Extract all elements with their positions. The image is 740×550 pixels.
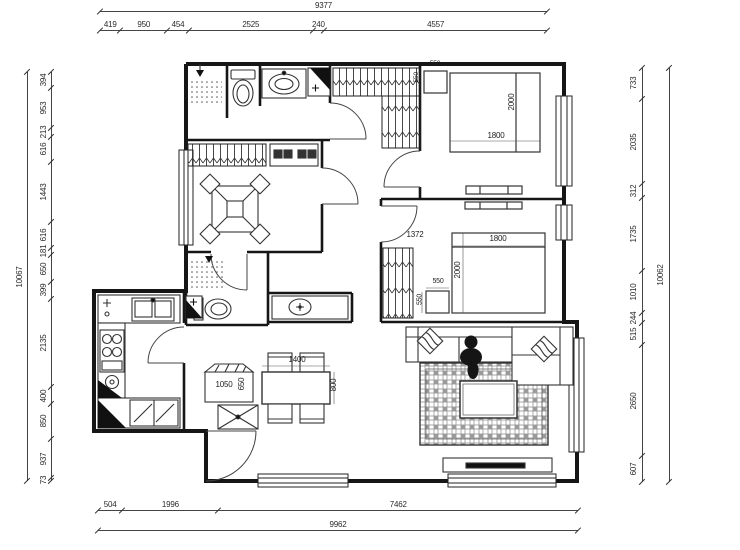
nightstand-icon xyxy=(424,71,447,93)
window-icon xyxy=(448,474,556,487)
wardrobe-hatch xyxy=(333,68,420,96)
second-nightstand-d-label: 550 xyxy=(417,288,424,312)
glass-cabinet-icon xyxy=(130,400,178,426)
master-nightstand-d-label: 550 xyxy=(414,66,421,88)
living-room xyxy=(406,327,573,472)
door-bath1 xyxy=(330,103,366,139)
dining-table-width-label: 800 xyxy=(330,375,338,395)
master-bed-width-label: 1800 xyxy=(478,132,514,140)
stove-icon xyxy=(100,330,124,372)
second-bed-width-label: 1800 xyxy=(478,235,518,243)
wardrobe-hatch xyxy=(383,248,413,318)
door-bedroom1 xyxy=(384,151,420,187)
dresser-icon xyxy=(270,144,318,166)
kitchen xyxy=(98,295,180,428)
floor-drain-icon xyxy=(105,312,109,316)
door-kitchen xyxy=(148,327,184,363)
wardrobe-hatch xyxy=(382,96,420,148)
dining-table-icon xyxy=(262,372,330,404)
window-icon xyxy=(556,205,572,240)
kitchen-sink-icon xyxy=(132,298,174,321)
nightstand-icon xyxy=(426,291,449,313)
wardrobe-hatch xyxy=(188,144,266,166)
washbasin-icon xyxy=(272,296,348,319)
sink-icon xyxy=(262,69,306,98)
master-bed-length-label: 2000 xyxy=(508,90,516,114)
dining-area xyxy=(205,353,334,429)
shaft-icon xyxy=(186,296,202,318)
bedroom-2 xyxy=(422,202,545,313)
shaft-icon xyxy=(308,68,330,96)
second-bed-length-label: 2000 xyxy=(454,258,462,282)
floor-plan-page: { "dimensions": { "top": {"total": 9377,… xyxy=(0,0,740,550)
door-tearoom xyxy=(322,168,358,204)
shower-area xyxy=(188,78,222,104)
toilet-icon xyxy=(231,70,255,106)
bed-icon xyxy=(450,73,540,152)
shower-head-icon xyxy=(196,70,204,77)
bed-icon xyxy=(452,233,545,313)
shoe-cabinet-icon xyxy=(218,405,258,429)
second-nightstand-w-label: 550 xyxy=(426,278,450,285)
floor-plan-canvas xyxy=(0,0,740,550)
door-entry xyxy=(206,431,256,481)
dining-table-length-label: 1400 xyxy=(274,356,320,364)
window-icon xyxy=(556,96,572,186)
bench-icon xyxy=(466,186,522,194)
master-nightstand-w-label: 550 xyxy=(424,61,446,68)
sideboard-width-label: 650 xyxy=(238,375,246,393)
coffee-table-icon xyxy=(460,381,517,418)
shower-area xyxy=(190,258,226,288)
pot-icon xyxy=(106,376,119,389)
table-icon xyxy=(212,186,258,232)
dining-chair-icon xyxy=(300,404,324,423)
tv-cabinet-icon xyxy=(443,458,552,472)
dining-chair-icon xyxy=(268,404,292,423)
shelf-icon xyxy=(465,202,522,209)
second-room-span-label: 1372 xyxy=(394,231,436,239)
window-icon xyxy=(258,474,348,487)
